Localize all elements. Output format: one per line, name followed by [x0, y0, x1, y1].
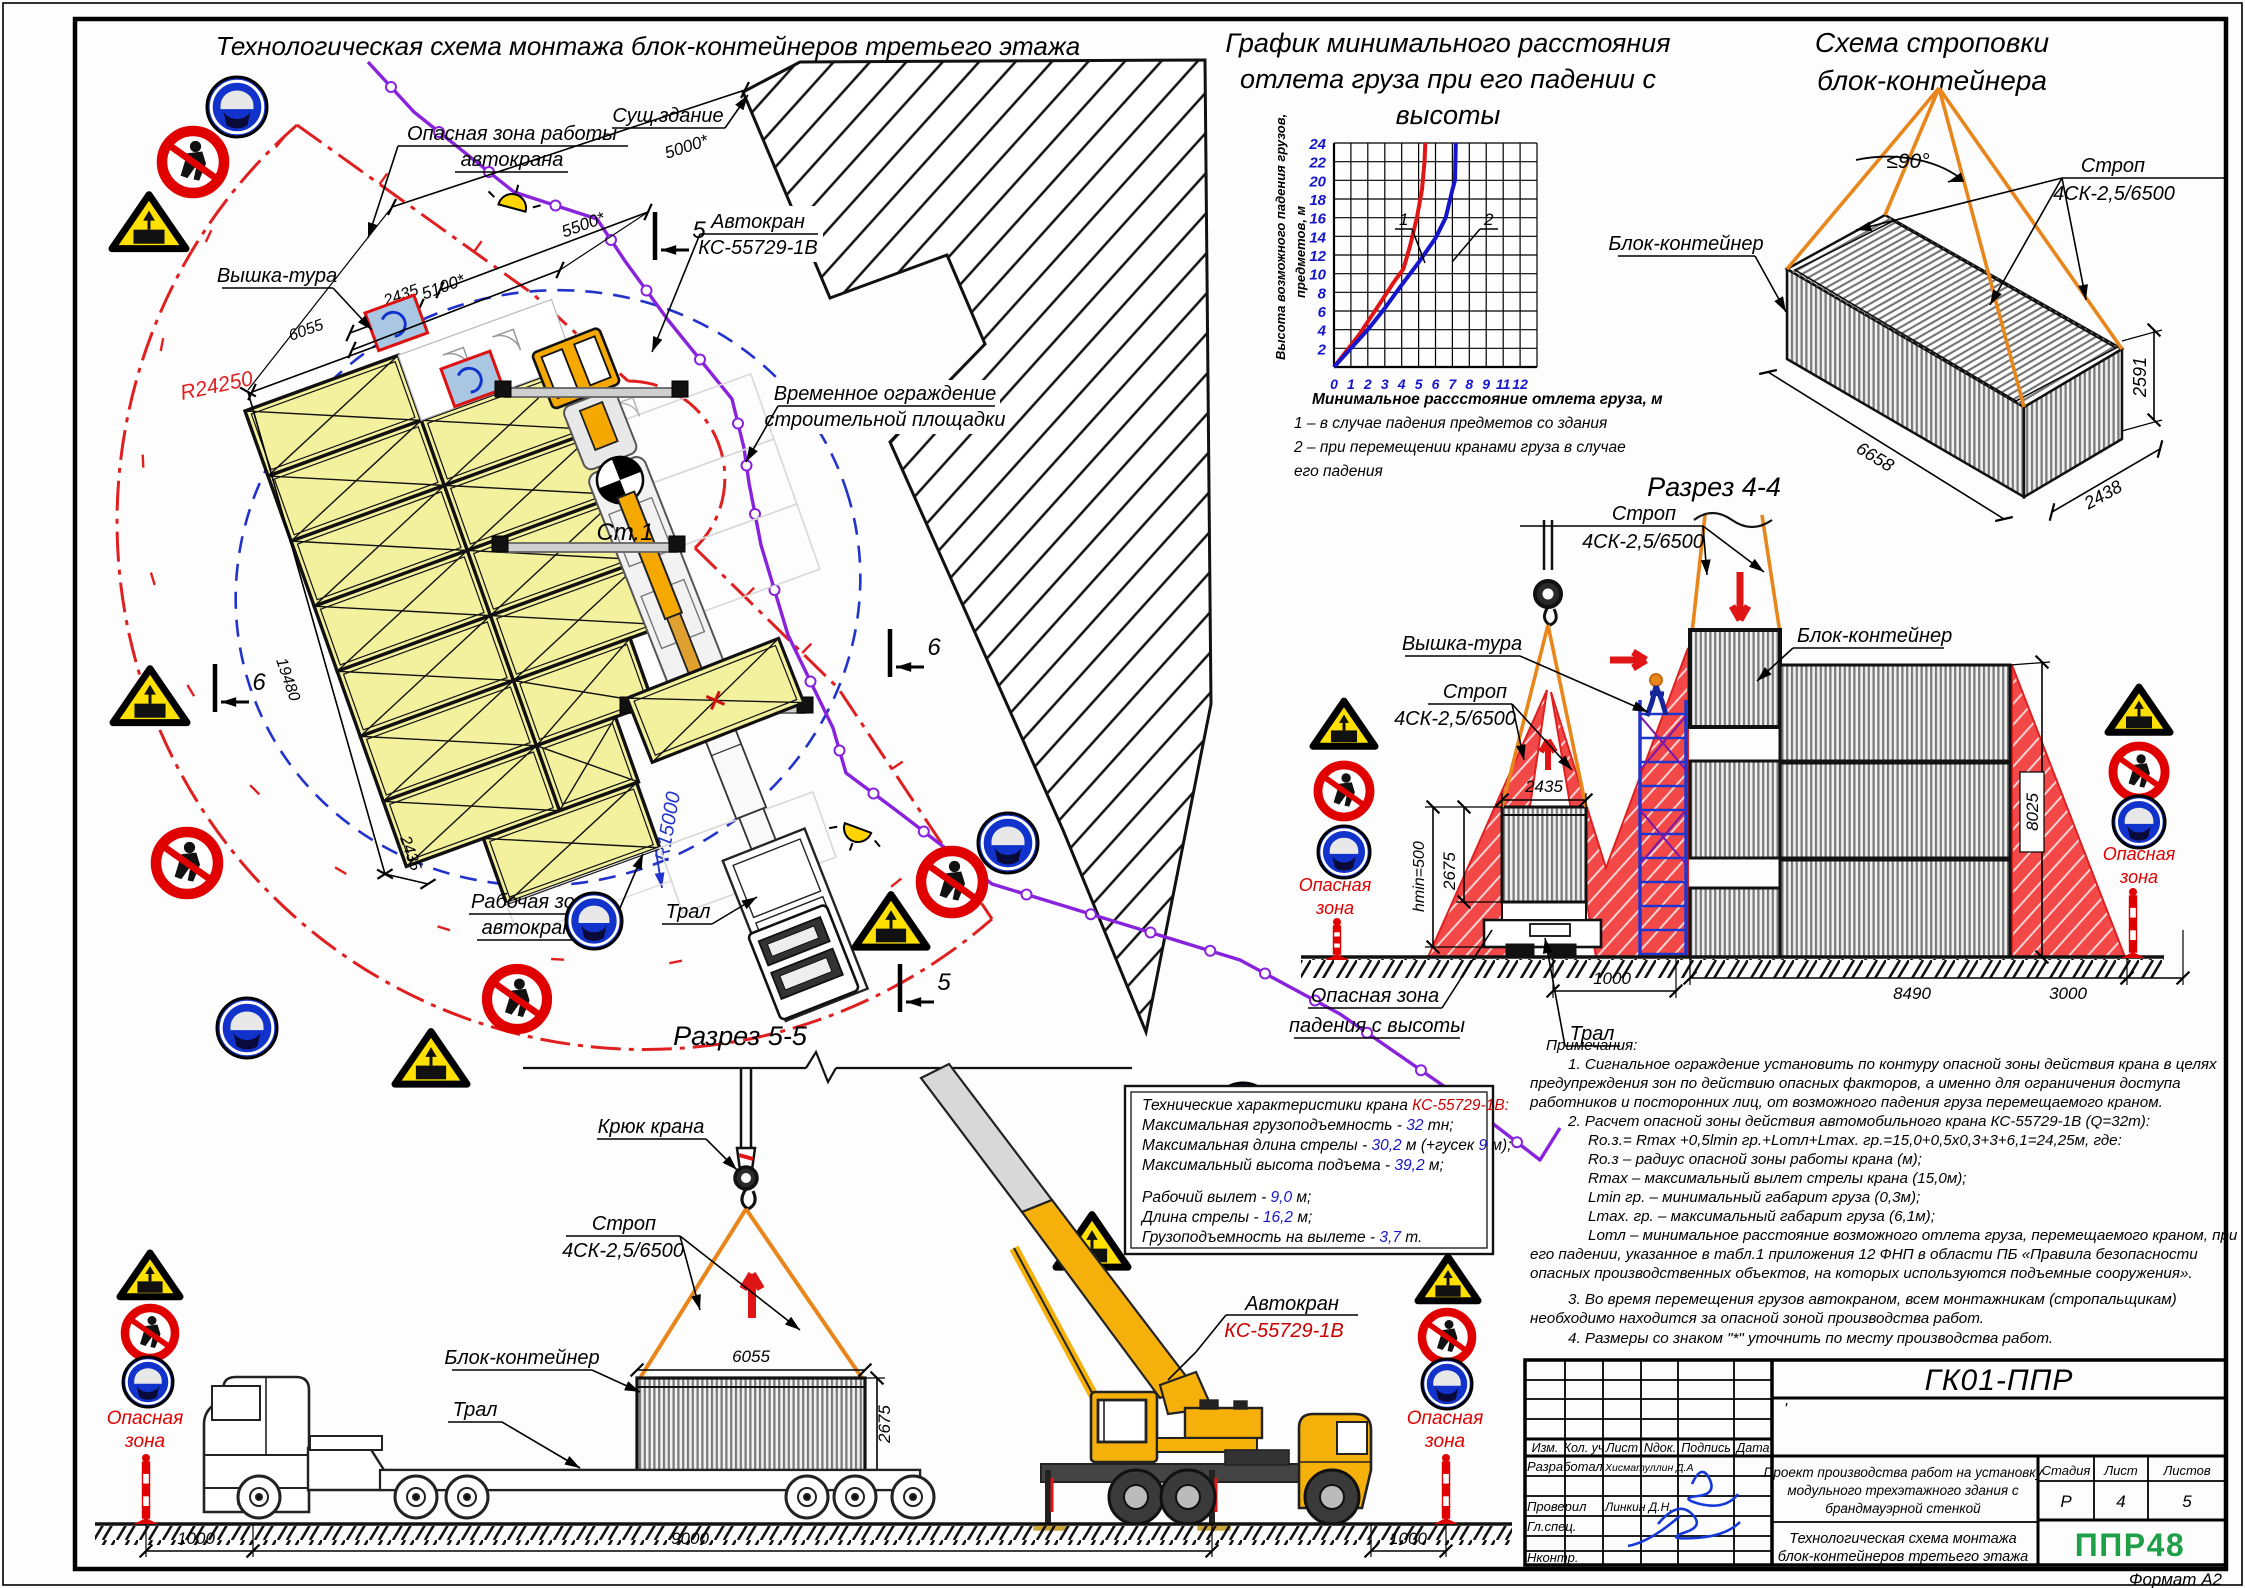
svg-text:ППР48: ППР48 — [2075, 1527, 2185, 1563]
svg-text:6: 6 — [1318, 304, 1327, 321]
svg-text:24: 24 — [1308, 136, 1326, 153]
svg-text:20: 20 — [1308, 173, 1326, 190]
svg-text:Разрез 5-5: Разрез 5-5 — [673, 1021, 808, 1051]
svg-text:Лист: Лист — [1605, 1441, 1638, 1455]
svg-text:Строп: Строп — [592, 1213, 656, 1235]
svg-text:Крюк крана: Крюк крана — [598, 1116, 705, 1138]
svg-text:Вышка-тура: Вышка-тура — [217, 265, 337, 287]
svg-text:1000: 1000 — [1389, 1529, 1427, 1548]
svg-text:предупреждения зон по действию: предупреждения зон по действию опасных ф… — [1530, 1075, 2181, 1092]
svg-text:0: 0 — [1330, 376, 1338, 392]
svg-text:Технологическая схема монтажа: Технологическая схема монтажа блок-конте… — [216, 31, 1080, 61]
svg-text:Высота возможного падения груз: Высота возможного падения грузов, — [1273, 114, 1288, 360]
svg-text:Проект производства работ на у: Проект производства работ на установку — [1764, 1465, 2044, 1480]
svg-text:4: 4 — [2116, 1492, 2125, 1511]
svg-text:2 – при перемещении кранами гр: 2 – при перемещении кранами груза в случ… — [1293, 439, 1626, 456]
svg-text:модульного трехэтажного здания: модульного трехэтажного здания с — [1787, 1483, 2018, 1498]
svg-text:9: 9 — [1482, 376, 1490, 392]
svg-text:Грузоподъемность на вылете - 3: Грузоподъемность на вылете - 3,7 т. — [1142, 1229, 1422, 1246]
svg-text:2591: 2591 — [2130, 357, 2150, 398]
svg-text:ГК01-ППР: ГК01-ППР — [1925, 1364, 2074, 1397]
svg-text:зона: зона — [2119, 867, 2158, 887]
svg-text:10: 10 — [1309, 267, 1326, 284]
svg-text:6: 6 — [252, 669, 266, 696]
svg-text:4: 4 — [1397, 376, 1406, 392]
svg-text:8: 8 — [1465, 376, 1473, 392]
svg-text:Стадия: Стадия — [2042, 1463, 2091, 1478]
svg-text:зона: зона — [1424, 1431, 1465, 1452]
svg-text:8490: 8490 — [1893, 984, 1931, 1003]
svg-text:Автокран: Автокран — [1244, 1293, 1339, 1315]
svg-text:Rmax – максимальный вылет стре: Rmax – максимальный вылет стрелы крана (… — [1588, 1170, 1967, 1187]
svg-text:Нконтр.: Нконтр. — [1527, 1550, 1578, 1565]
svg-text:5: 5 — [692, 217, 706, 244]
svg-text:2: 2 — [1317, 341, 1327, 358]
svg-text:4СК-2,5/6500: 4СК-2,5/6500 — [562, 1240, 684, 1262]
svg-text:Блок-контейнер: Блок-контейнер — [1608, 233, 1763, 255]
svg-text:падения с высоты: падения с высоты — [1289, 1015, 1465, 1037]
svg-text:Опасная: Опасная — [2103, 844, 2176, 864]
svg-text:зона: зона — [124, 1431, 165, 1452]
svg-text:Rо.з – радиус опасной зоны раб: Rо.з – радиус опасной зоны работы крана … — [1588, 1151, 1922, 1168]
svg-text:необходимо находится за опасно: необходимо находится за опасной зоной пр… — [1530, 1310, 1984, 1327]
svg-text:1 – в случае падения предметов: 1 – в случае падения предметов со здания — [1294, 415, 1607, 432]
svg-text:1000: 1000 — [1593, 969, 1631, 988]
svg-text:Lmax. гр. – максимальный габар: Lmax. гр. – максимальный габарит груза (… — [1588, 1208, 1935, 1225]
svg-text:Строп: Строп — [2081, 155, 2145, 177]
svg-text:блок-контейнеров третьего этаж: блок-контейнеров третьего этажа — [1778, 1549, 2029, 1565]
svg-text:Lотл – минимальное расстояние: Lотл – минимальное расстояние возможного… — [1588, 1227, 2238, 1244]
svg-text:Проверил: Проверил — [1527, 1499, 1587, 1514]
svg-text:8: 8 — [1318, 285, 1327, 302]
svg-text:Изм.: Изм. — [1532, 1441, 1559, 1455]
svg-text:2: 2 — [1363, 376, 1372, 392]
svg-text:Подпись: Подпись — [1681, 1441, 1731, 1455]
svg-text:Строп: Строп — [1443, 681, 1507, 703]
svg-text:высоты: высоты — [1396, 100, 1501, 130]
svg-text:отлета груза при его падении с: отлета груза при его падении с — [1240, 64, 1656, 94]
svg-text:5: 5 — [937, 969, 951, 996]
svg-text:2435: 2435 — [1524, 777, 1563, 796]
svg-text:5: 5 — [1415, 376, 1423, 392]
svg-text:Lmin гр. – минимальный габарит: Lmin гр. – минимальный габарит груза (0,… — [1588, 1189, 1920, 1206]
svg-text:опасных производственных объек: опасных производственных объектов, на ко… — [1530, 1265, 2193, 1282]
svg-text:Дата: Дата — [1735, 1441, 1770, 1455]
svg-text:1000: 1000 — [177, 1529, 215, 1548]
svg-text:4СК-2,5/6500: 4СК-2,5/6500 — [1582, 531, 1704, 553]
svg-text:Rо.з.= Rmax +0,5lmin гр.+Lотл+: Rо.з.= Rmax +0,5lmin гр.+Lотл+Lmax. гр.=… — [1588, 1132, 2122, 1149]
svg-text:Технологическая схема монтажа: Технологическая схема монтажа — [1789, 1531, 2017, 1547]
svg-text:Временное ограждение: Временное ограждение — [774, 383, 996, 405]
svg-text:2. Расчет опасной зоны действи: 2. Расчет опасной зоны действия автомоби… — [1567, 1113, 2150, 1130]
svg-text:Автокран: Автокран — [710, 211, 805, 233]
svg-text:График минимального расстояния: График минимального расстояния — [1225, 28, 1670, 58]
svg-text:4СК-2,5/6500: 4СК-2,5/6500 — [2053, 183, 2175, 205]
svg-text:брандмауэрной стенкой: брандмауэрной стенкой — [1825, 1501, 1981, 1516]
svg-text:предметов, м: предметов, м — [1293, 205, 1308, 298]
svg-text:1: 1 — [1399, 210, 1408, 229]
svg-text:9000: 9000 — [671, 1529, 709, 1548]
svg-text:8025: 8025 — [2023, 793, 2042, 831]
svg-text:Лист: Лист — [2103, 1463, 2138, 1478]
svg-text:Рабочий вылет - 9,0 м;: Рабочий вылет - 9,0 м; — [1142, 1189, 1311, 1206]
svg-text:Опасная: Опасная — [107, 1408, 183, 1429]
svg-text:7: 7 — [1449, 376, 1458, 392]
svg-text:Максимальная грузоподъемность: Максимальная грузоподъемность - 32 тн; — [1142, 1117, 1454, 1134]
svg-text:Длина стрелы - 16,2 м;: Длина стрелы - 16,2 м; — [1140, 1209, 1312, 1226]
svg-text:12: 12 — [1512, 376, 1528, 392]
svg-text:Блок-контейнер: Блок-контейнер — [1797, 625, 1952, 647]
svg-text:Кол. уч: Кол. уч — [1564, 1441, 1605, 1455]
svg-text:3: 3 — [1381, 376, 1389, 392]
svg-text:КС-55729-1В: КС-55729-1В — [698, 237, 817, 259]
svg-text:Вышка-тура: Вышка-тура — [1402, 633, 1522, 655]
svg-text:Линкин Д.Н.: Линкин Д.Н. — [1604, 1500, 1673, 1514]
svg-text:Блок-контейнер: Блок-контейнер — [444, 1347, 599, 1369]
svg-text:Опасная: Опасная — [1299, 875, 1372, 895]
svg-text:Ст.1: Ст.1 — [596, 519, 653, 546]
svg-text:Трал: Трал — [453, 1399, 498, 1421]
svg-text:6055: 6055 — [732, 1347, 770, 1366]
svg-text:Примечания:: Примечания: — [1546, 1037, 1637, 1054]
svg-text:Гл.спец.: Гл.спец. — [1527, 1519, 1576, 1534]
svg-text:КС-55729-1В: КС-55729-1В — [1224, 1320, 1343, 1342]
svg-text:4: 4 — [1317, 323, 1327, 340]
svg-text:Максимальная длина стрелы - 30: Максимальная длина стрелы - 30,2 м (+гус… — [1142, 1137, 1512, 1154]
svg-text:строительной площадки: строительной площадки — [765, 409, 1006, 431]
svg-text:работников и посторонних лиц,: работников и посторонних лиц, от возможн… — [1529, 1094, 2163, 1111]
svg-text:Максимальный высота подъема -: Максимальный высота подъема - 39,2 м; — [1142, 1157, 1444, 1174]
svg-text:Nдок.: Nдок. — [1644, 1441, 1676, 1455]
svg-text:1. Сигнальное ограждение уста: 1. Сигнальное ограждение установить по к… — [1568, 1056, 2218, 1073]
svg-text:16: 16 — [1309, 211, 1326, 228]
svg-text:Разрез 4-4: Разрез 4-4 — [1647, 472, 1781, 502]
svg-text:Технические характеристики кра: Технические характеристики крана КС-5572… — [1142, 1097, 1509, 1114]
svg-text:1: 1 — [1347, 376, 1355, 392]
svg-text:4СК-2,5/6500: 4СК-2,5/6500 — [1394, 708, 1516, 730]
svg-text:его падения: его падения — [1294, 463, 1383, 480]
svg-text:2: 2 — [1483, 210, 1494, 229]
svg-text:Схема строповки: Схема строповки — [1815, 27, 2050, 58]
svg-text:11: 11 — [1496, 376, 1511, 392]
svg-text:3. Во время перемещения грузов: 3. Во время перемещения грузов автокрано… — [1568, 1291, 2177, 1308]
svg-text:Листов: Листов — [2162, 1463, 2211, 1478]
svg-text:Формат А2: Формат А2 — [2129, 1570, 2223, 1588]
svg-text:Р: Р — [2060, 1492, 2072, 1511]
svg-text:Хисматуллин Д.А: Хисматуллин Д.А — [1604, 1462, 1693, 1474]
svg-text:4. Размеры со знаком "*" уточн: 4. Размеры со знаком "*" уточнить по мес… — [1568, 1330, 2053, 1347]
svg-text:3000: 3000 — [2049, 984, 2087, 1003]
svg-text:Опасная зона работы: Опасная зона работы — [407, 123, 617, 145]
svg-text:12: 12 — [1309, 248, 1326, 265]
svg-text:14: 14 — [1309, 229, 1326, 246]
svg-text:2675: 2675 — [1440, 852, 1459, 891]
svg-text:hmin=500: hmin=500 — [1411, 841, 1428, 912]
svg-text:6: 6 — [1432, 376, 1440, 392]
svg-text:18: 18 — [1309, 192, 1326, 209]
svg-text:Опасная зона: Опасная зона — [1311, 985, 1439, 1007]
svg-text:2675: 2675 — [875, 1405, 894, 1444]
svg-text:зона: зона — [1315, 898, 1354, 918]
svg-text:Минимальное рассстояние отлета: Минимальное рассстояние отлета груза, м — [1312, 391, 1663, 408]
svg-text:Разработал: Разработал — [1527, 1459, 1603, 1474]
svg-text:Опасная: Опасная — [1407, 1408, 1483, 1429]
svg-text:5: 5 — [2182, 1492, 2192, 1511]
svg-text:его падении, указанное в табл.: его падении, указанное в табл.1 приложен… — [1530, 1246, 2198, 1263]
svg-text:Трал: Трал — [666, 901, 711, 923]
svg-text:22: 22 — [1308, 155, 1326, 172]
svg-text:6: 6 — [927, 634, 941, 661]
svg-text:блок-контейнера: блок-контейнера — [1817, 65, 2047, 96]
svg-text:Строп: Строп — [1612, 503, 1676, 525]
